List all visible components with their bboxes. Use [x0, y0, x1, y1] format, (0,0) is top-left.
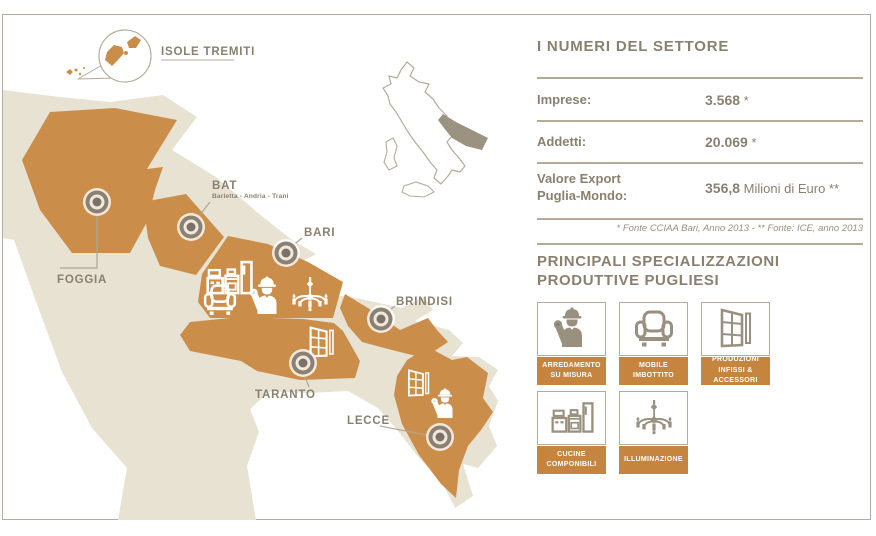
card-label: PRODUZIONI INFISSI & ACCESSORI — [701, 357, 770, 385]
worker-icon — [553, 308, 581, 348]
panel-title: I NUMERI DEL SETTORE — [537, 38, 729, 55]
armchair-icon — [636, 312, 671, 347]
bari-marker-icon — [272, 239, 300, 267]
stat-label: Addetti: — [537, 134, 586, 151]
card-label: MOBILE IMBOTTITO — [619, 357, 688, 385]
map-label-foggia: FOGGIA — [57, 274, 107, 286]
divider — [537, 218, 863, 220]
bat-marker-icon — [177, 213, 205, 241]
specializations-title-line2: PRODUTTIVE PUGLIESI — [537, 272, 719, 289]
stat-row-imprese: Imprese: 3.568 * — [537, 92, 863, 109]
divider — [537, 243, 863, 245]
foggia-marker-icon — [83, 188, 111, 216]
card-illuminazione: ILLUMINAZIONE — [619, 391, 688, 474]
sector-numbers-panel: I NUMERI DEL SETTORE Imprese: 3.568 * Ad… — [537, 14, 863, 521]
isole-tremiti-callout — [66, 30, 151, 82]
stat-suffix: Milioni di Euro ** — [740, 181, 839, 196]
kitchen-icon — [552, 403, 592, 431]
lecce-marker-icon — [426, 423, 454, 451]
stat-label-line2: Puglia-Mondo: — [537, 188, 627, 203]
stat-label: Imprese: — [537, 92, 591, 109]
stat-suffix: * — [748, 135, 757, 150]
card-label: ARREDAMENTO SU MISURA — [537, 357, 606, 385]
chandelier-icon — [636, 400, 671, 434]
card-label: ILLUMINAZIONE — [619, 446, 688, 474]
card-produzioni-infissi: PRODUZIONI INFISSI & ACCESSORI — [701, 302, 770, 385]
stat-value: 20.069 — [705, 134, 748, 150]
divider — [537, 77, 863, 79]
card-label: CUCINE COMPONIBILI — [537, 446, 606, 474]
brindisi-marker-icon — [367, 305, 395, 333]
stat-label-line1: Valore Export — [537, 171, 621, 186]
specializations-title-line1: PRINCIPALI SPECIALIZZAZIONI — [537, 253, 780, 270]
stat-value: 356,8 — [705, 180, 740, 196]
map-sublabel-bat: Barletta - Andria - Trani — [212, 193, 289, 200]
card-cucine-componibili: CUCINE COMPONIBILI — [537, 391, 606, 474]
taranto-marker-icon — [289, 349, 317, 377]
sources-footnote: * Fonte CCIAA Bari, Anno 2013 - ** Fonte… — [617, 223, 863, 234]
card-arredamento-su-misura: ARREDAMENTO SU MISURA — [537, 302, 606, 385]
map-label-lecce: LECCE — [347, 415, 390, 427]
map-label-bat: BAT — [212, 180, 237, 192]
stat-row-export: Valore Export Puglia-Mondo: 356,8 Milion… — [537, 171, 863, 205]
isole-tremiti-label: ISOLE TREMITI — [161, 46, 255, 58]
map-label-brindisi: BRINDISI — [396, 296, 453, 308]
stat-suffix: * — [740, 93, 749, 108]
divider — [537, 162, 863, 164]
map-label-taranto: TARANTO — [255, 389, 316, 401]
stat-value: 3.568 — [705, 92, 740, 108]
card-mobile-imbottito: MOBILE IMBOTTITO — [619, 302, 688, 385]
specialization-cards: ARREDAMENTO SU MISURA MOBILE IMBOTTITO P… — [537, 302, 787, 474]
stat-row-addetti: Addetti: 20.069 * — [537, 134, 863, 151]
map-label-bari: BARI — [304, 227, 335, 239]
divider — [537, 120, 863, 122]
italy-minimap — [383, 62, 488, 197]
specializations-title: PRINCIPALI SPECIALIZZAZIONI PRODUTTIVE P… — [537, 252, 780, 290]
window-icon — [722, 310, 750, 346]
